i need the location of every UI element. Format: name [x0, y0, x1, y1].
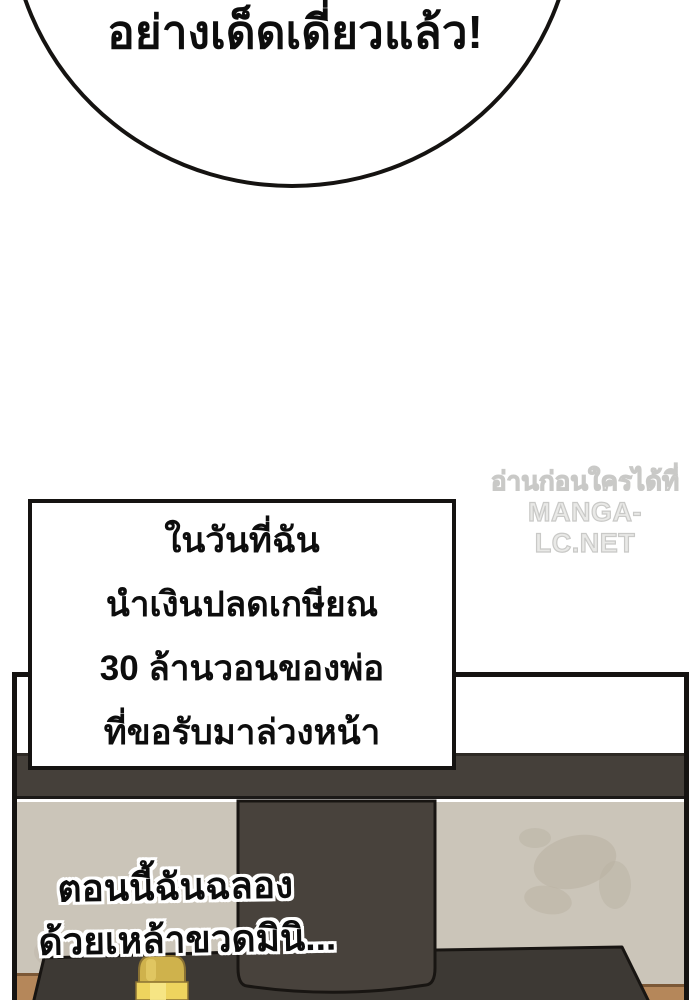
site-watermark: อ่านก่อนใครได้ที่ MANGA-LC.NET: [480, 466, 690, 559]
narration-line: นำเงินปลดเกษียณ: [32, 573, 452, 637]
speech-bubble-text: อย่างเด็ดเดี่ยวแล้ว!: [70, 2, 520, 62]
narration-box: ในวันที่ฉัน นำเงินปลดเกษียณ 30 ล้านวอนขอ…: [28, 499, 456, 770]
caption-line: ตอนนี้ฉันฉลอง: [57, 857, 358, 915]
narration-line: 30 ล้านวอนของพ่อ: [32, 637, 452, 701]
watermark-tagline: อ่านก่อนใครได้ที่: [480, 466, 690, 497]
watermark-site-name: MANGA-LC.NET: [480, 497, 690, 559]
narration-line: ที่ขอรับมาล่วงหน้า: [32, 701, 452, 765]
manga-page: อย่างเด็ดเดี่ยวแล้ว! อ่านก่อนใครได้ที่ M…: [0, 0, 700, 1000]
narration-line: ในวันที่ฉัน: [32, 509, 452, 573]
caption-text: ตอนนี้ฉันฉลอง ด้วยเหล้าขวดมินิ...: [37, 857, 359, 969]
caption-line: ด้วยเหล้าขวดมินิ...: [38, 910, 359, 969]
